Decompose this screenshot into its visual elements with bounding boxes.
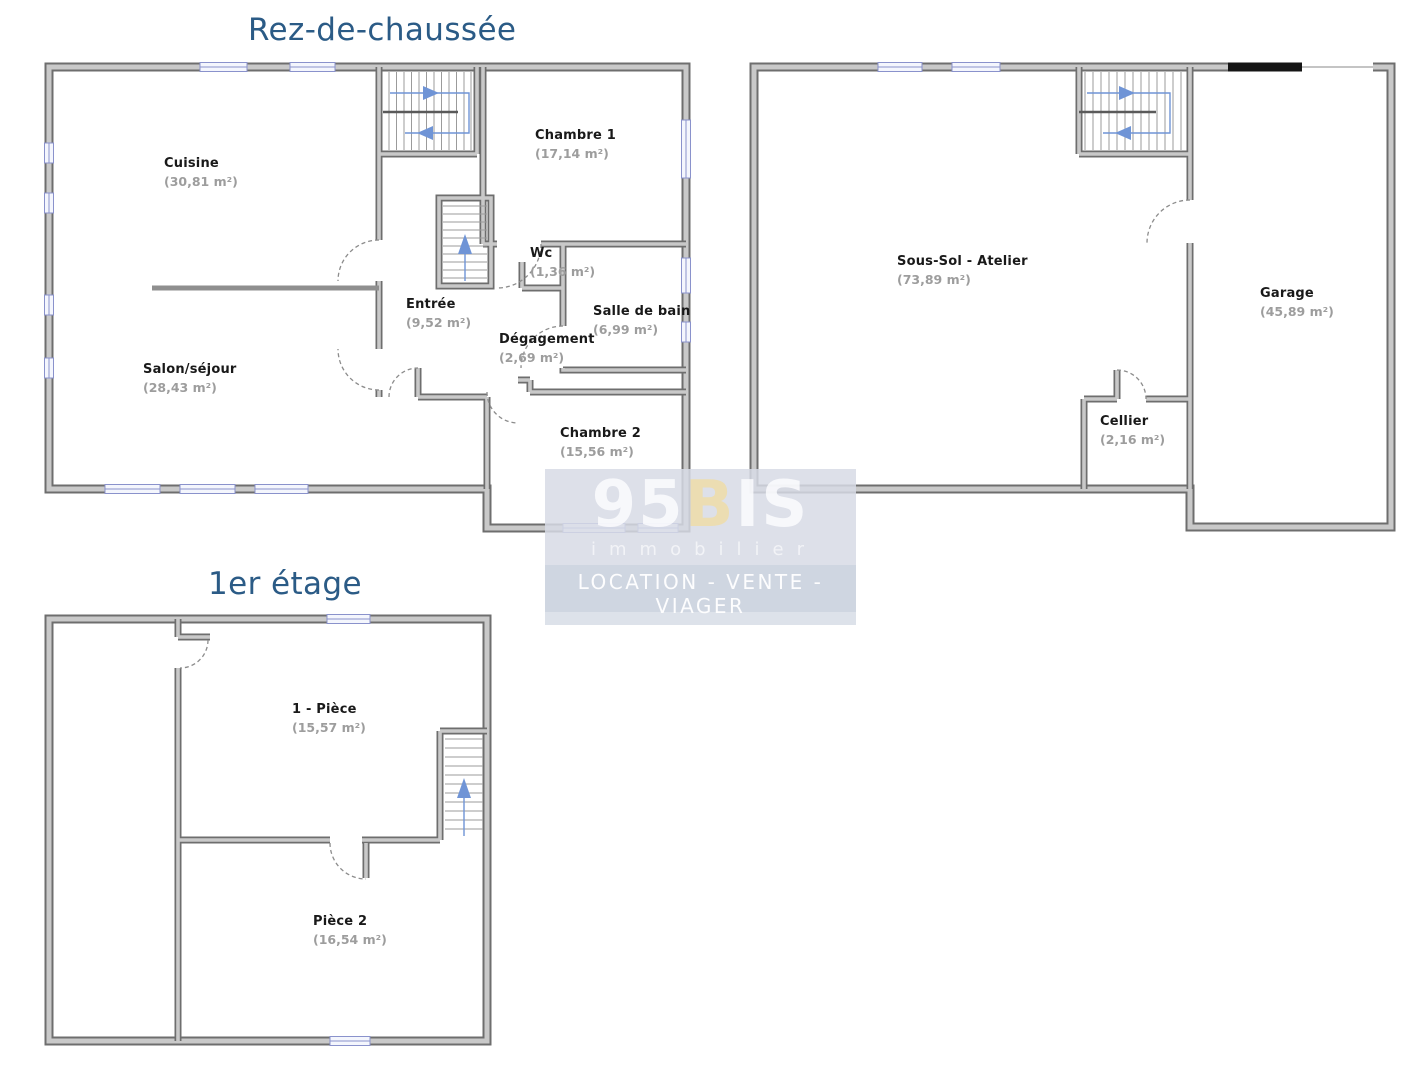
room-name: Entrée: [406, 297, 471, 313]
door-arc: [1147, 200, 1190, 243]
garage-door: [1228, 63, 1373, 72]
stairs-arrow-up-icon: [457, 778, 471, 798]
room-name: Chambre 1: [535, 128, 616, 144]
room-label-chambre-1: Chambre 1 (17,14 m²): [535, 128, 616, 162]
room-name: Dégagement: [499, 332, 595, 348]
room-name: Chambre 2: [560, 426, 641, 442]
room-name: Cellier: [1100, 414, 1165, 430]
door-arc: [180, 640, 208, 668]
door-arc: [338, 349, 379, 390]
room-name: Salle de bain: [593, 304, 690, 320]
first-floor-title: 1er étage: [208, 566, 362, 602]
room-name: Garage: [1260, 286, 1334, 302]
watermark-subtitle: immobilier: [584, 539, 817, 560]
first-floor-plan: [49, 615, 487, 1046]
room-area: (2,16 m²): [1100, 432, 1165, 448]
door-arc: [338, 240, 379, 281]
room-name: 1 - Pièce: [292, 702, 366, 718]
room-area: (16,54 m²): [313, 932, 387, 948]
door-arc: [487, 392, 518, 423]
watermark-tagline: LOCATION - VENTE - VIAGER: [545, 565, 856, 625]
stairs-arrow-right-icon: [423, 86, 439, 100]
room-area: (17,14 m²): [535, 146, 616, 162]
door-arc: [330, 843, 366, 879]
room-label-garage: Garage (45,89 m²): [1260, 286, 1334, 320]
room-label-entree: Entrée (9,52 m²): [406, 297, 471, 331]
room-label-degagement: Dégagement (2,69 m²): [499, 332, 595, 366]
room-label-1-piece: 1 - Pièce (15,57 m²): [292, 702, 366, 736]
windows: [327, 615, 370, 1046]
u-staircase: [1079, 72, 1181, 150]
room-name: Cuisine: [164, 156, 238, 172]
room-label-chambre-2: Chambre 2 (15,56 m²): [560, 426, 641, 460]
room-name: Pièce 2: [313, 914, 387, 930]
room-label-piece-2: Pièce 2 (16,54 m²): [313, 914, 387, 948]
room-label-cellier: Cellier (2,16 m²): [1100, 414, 1165, 448]
straight-staircase: [445, 739, 483, 836]
room-area: (73,89 m²): [897, 272, 1028, 288]
room-area: (30,81 m²): [164, 174, 238, 190]
room-label-cuisine: Cuisine (30,81 m²): [164, 156, 238, 190]
watermark-brand-logo: 95BIS: [592, 473, 810, 537]
room-area: (15,56 m²): [560, 444, 641, 460]
door-arc: [389, 368, 418, 397]
room-area: (28,43 m²): [143, 380, 237, 396]
brand-95: 95: [592, 468, 685, 542]
room-area: (2,69 m²): [499, 350, 595, 366]
floorplan-canvas: Rez-de-chaussée 1er étage Cuisine (30,81…: [0, 0, 1410, 1080]
room-name: Salon/séjour: [143, 362, 237, 378]
ground-floor-title: Rez-de-chaussée: [248, 12, 516, 48]
stairs-arrow-up-icon: [458, 234, 472, 254]
brand-b: B: [685, 468, 736, 542]
room-label-sous-sol-atelier: Sous-Sol - Atelier (73,89 m²): [897, 254, 1028, 288]
brand-is: IS: [735, 468, 809, 542]
room-label-salon-sejour: Salon/séjour (28,43 m²): [143, 362, 237, 396]
room-name: Wc: [530, 246, 595, 262]
room-area: (1,36 m²): [530, 264, 595, 280]
room-area: (15,57 m²): [292, 720, 366, 736]
u-staircase: [383, 72, 471, 150]
room-area: (9,52 m²): [406, 315, 471, 331]
room-label-wc: Wc (1,36 m²): [530, 246, 595, 280]
watermark: 95BIS immobilier LOCATION - VENTE - VIAG…: [545, 469, 856, 612]
room-area: (6,99 m²): [593, 322, 690, 338]
room-name: Sous-Sol - Atelier: [897, 254, 1028, 270]
door-arcs: [1117, 200, 1190, 399]
door-arc: [1117, 370, 1146, 399]
walls: [49, 619, 487, 1041]
room-label-salle-de-bain: Salle de bain (6,99 m²): [593, 304, 690, 338]
room-area: (45,89 m²): [1260, 304, 1334, 320]
